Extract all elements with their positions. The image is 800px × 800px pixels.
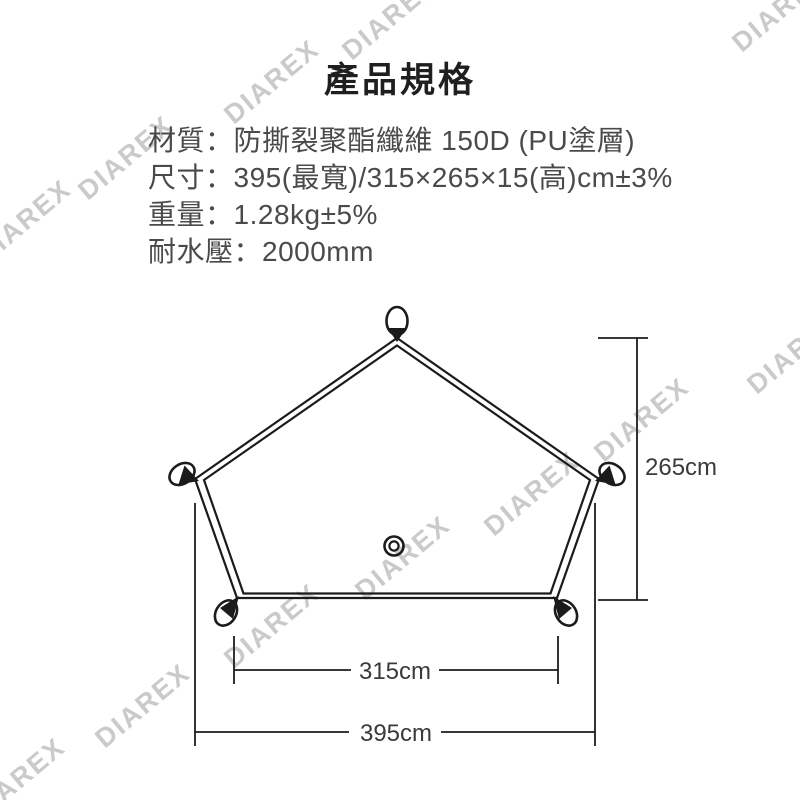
loop-wedge bbox=[388, 328, 407, 342]
center-grommet bbox=[385, 537, 404, 556]
product-spec-image: DIAREX DIAREX DIAREX DIAREX DIAREX DIARE… bbox=[0, 0, 800, 800]
corner-loop-right bbox=[595, 458, 629, 489]
dimension-max-width: 395cm bbox=[195, 503, 595, 747]
max-width-dimension-label: 395cm bbox=[360, 720, 432, 747]
grommet-outer-ring bbox=[385, 537, 404, 556]
bottom-width-dimension-label: 315cm bbox=[359, 658, 431, 685]
height-dimension-label: 265cm bbox=[645, 454, 717, 481]
tarp-outer-edge bbox=[195, 338, 599, 598]
grommet-inner-ring bbox=[389, 541, 398, 550]
dimension-bottom-width: 315cm bbox=[234, 636, 558, 685]
footprint-diagram: 265cm 315cm 395cm bbox=[0, 0, 800, 800]
corner-loop-bottom-left bbox=[210, 596, 241, 630]
tarp-outline bbox=[195, 338, 599, 598]
corner-loop-bottom-right bbox=[550, 596, 581, 630]
corner-loop-left bbox=[165, 458, 199, 489]
corner-loop-top bbox=[387, 307, 408, 342]
